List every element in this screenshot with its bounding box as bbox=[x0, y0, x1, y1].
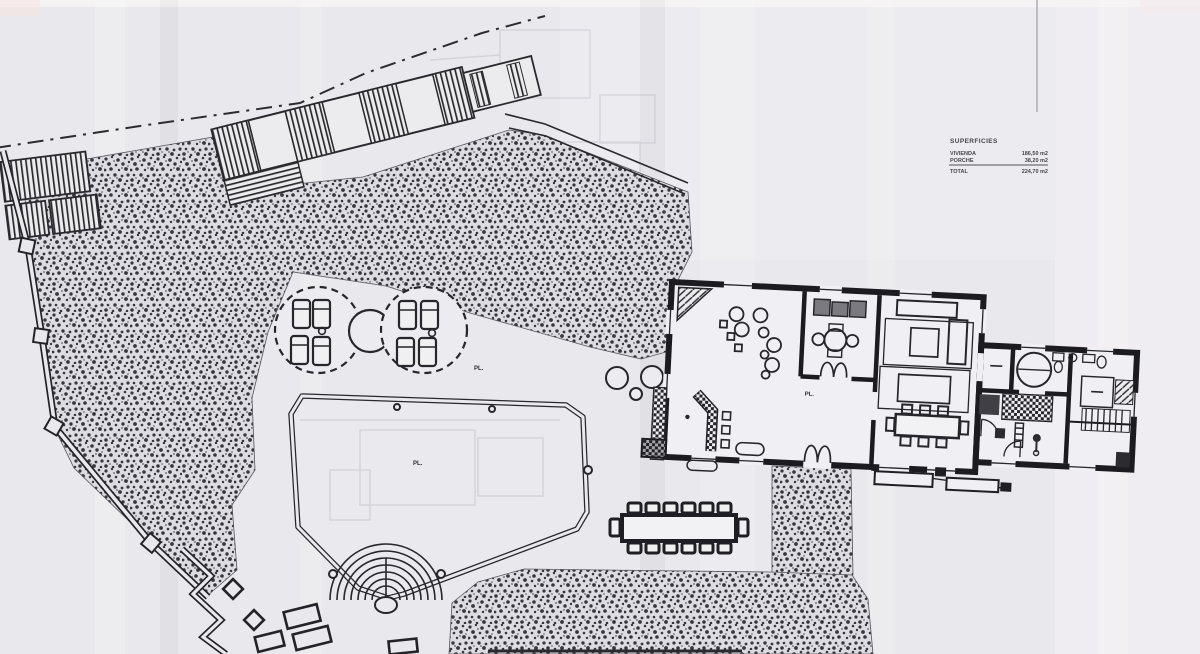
tiled-floor bbox=[1002, 393, 1053, 421]
legend-row1-value: 186,50 m2 bbox=[1022, 151, 1048, 157]
room-label: PL. bbox=[805, 392, 815, 398]
pergola-circle-right bbox=[381, 287, 467, 373]
stipple-bottom-mass bbox=[449, 569, 873, 654]
site-plan-scan: PL. PL. bbox=[0, 0, 1200, 654]
shower bbox=[979, 394, 1000, 415]
legend-title: SUPERFICIES bbox=[950, 138, 998, 145]
terrace-label: PL. bbox=[474, 366, 484, 372]
stair-hatch bbox=[1115, 380, 1134, 405]
plan-drawing: PL. PL. bbox=[0, 0, 1200, 654]
legend-total-value: 224,70 m2 bbox=[1022, 169, 1048, 175]
legend-row1-label: VIVIENDA bbox=[950, 151, 976, 157]
pool-label: PL. bbox=[413, 461, 423, 467]
legend-row2-label: PORCHE bbox=[950, 158, 974, 164]
legend-row2-value: 38,20 m2 bbox=[1025, 158, 1048, 164]
stipple-below-house bbox=[772, 466, 853, 575]
legend-total-label: TOTAL bbox=[950, 169, 968, 175]
